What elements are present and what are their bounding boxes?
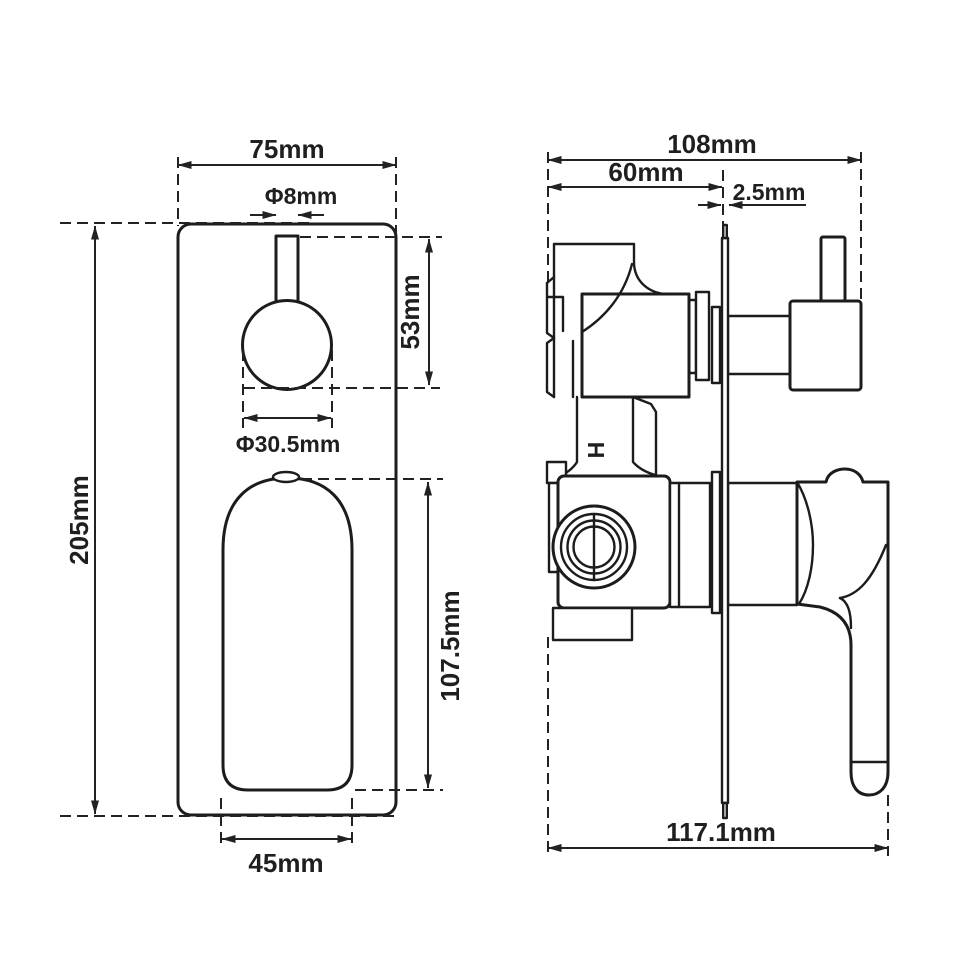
bottom-collar: [712, 472, 720, 613]
dim-plate-thickness: 2.5mm: [698, 179, 806, 205]
side-wall-plate: [722, 225, 728, 818]
side-knob-stem: [821, 237, 845, 301]
diagram-canvas: H 75mm Φ8mm 53mm Φ30.5mm: [0, 0, 960, 960]
top-cartridge-flange: [696, 292, 709, 380]
bottom-cartridge: [670, 483, 710, 607]
bottom-foot-block: [553, 608, 632, 640]
top-bracket-step: [548, 297, 563, 331]
wall-plate-top-tab: [723, 225, 727, 238]
top-body-block: [582, 294, 689, 397]
side-top-assembly: [547, 237, 861, 397]
front-knob-stem: [276, 236, 298, 304]
dim-body-depth: 60mm: [548, 157, 722, 187]
wall-plate-bottom-tab: [723, 803, 727, 818]
dim-label-stem-diameter: Φ8mm: [265, 183, 338, 209]
side-connecting-pipe: [558, 397, 662, 477]
dim-label-plate-height: 205mm: [64, 475, 94, 565]
side-bottom-assembly: [547, 462, 888, 795]
front-view: [178, 224, 396, 815]
dim-label-handle-height: 107.5mm: [435, 590, 465, 701]
dim-label-knob-diameter: Φ30.5mm: [236, 431, 341, 457]
front-handle-outline: [223, 478, 352, 790]
dim-label-total-width: 117.1mm: [666, 817, 776, 847]
technical-drawing: H 75mm Φ8mm 53mm Φ30.5mm: [0, 0, 960, 960]
dim-total-depth: 108mm: [548, 129, 861, 160]
dim-label-total-depth: 108mm: [667, 129, 757, 159]
side-view: H: [547, 225, 888, 818]
dim-label-stem-to-knob: 53mm: [395, 274, 425, 349]
dim-label-plate-width: 75mm: [249, 134, 324, 164]
dim-total-width: 117.1mm: [548, 817, 888, 848]
wall-plate: [722, 238, 728, 803]
top-through-cylinder: [728, 316, 790, 374]
hot-water-marker: H: [583, 442, 609, 459]
side-knob-body: [790, 301, 861, 390]
pipe-right-edge: [633, 397, 662, 477]
bottom-through-cylinder: [728, 483, 797, 605]
top-collar: [712, 307, 720, 383]
dim-label-body-depth: 60mm: [608, 157, 683, 187]
dim-label-plate-thickness: 2.5mm: [733, 179, 806, 205]
front-handle-pin: [273, 472, 299, 482]
front-knob-circle: [243, 301, 332, 390]
dim-stem-diameter: Φ8mm: [250, 183, 337, 215]
top-pipe-contour: [547, 244, 689, 294]
dim-label-handle-width: 45mm: [248, 848, 323, 878]
